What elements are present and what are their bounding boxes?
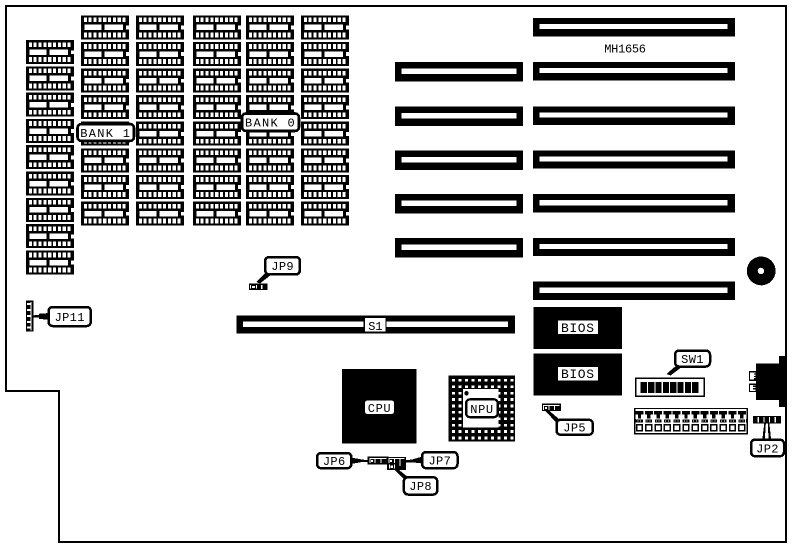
svg-text:JP8: JP8	[409, 480, 432, 494]
svg-text:JP7: JP7	[428, 455, 451, 469]
svg-text:BIOS: BIOS	[561, 321, 595, 336]
svg-text:JP11: JP11	[55, 311, 85, 325]
svg-text:S1: S1	[368, 320, 382, 334]
svg-text:SW1: SW1	[681, 353, 704, 367]
svg-text:MH1656: MH1656	[604, 43, 646, 57]
svg-text:BANK 1: BANK 1	[80, 127, 131, 141]
svg-text:JP6: JP6	[323, 455, 346, 469]
svg-text:JP2: JP2	[756, 442, 779, 456]
svg-text:NPU: NPU	[470, 403, 493, 417]
svg-text:JP9: JP9	[271, 260, 294, 274]
svg-text:BANK 0: BANK 0	[245, 117, 296, 131]
svg-text:CPU: CPU	[368, 402, 391, 416]
svg-text:BIOS: BIOS	[561, 367, 595, 382]
svg-text:JP5: JP5	[563, 422, 586, 436]
